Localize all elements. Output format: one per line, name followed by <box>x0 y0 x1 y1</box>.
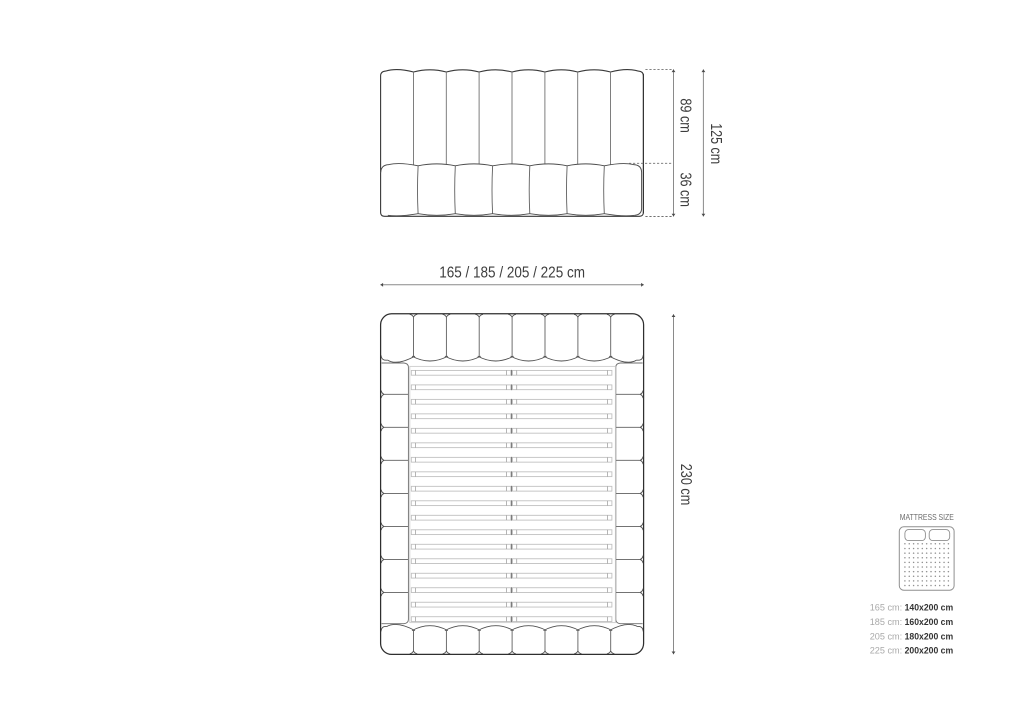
svg-text:230 cm: 230 cm <box>677 464 694 506</box>
svg-text:89 cm: 89 cm <box>677 98 694 133</box>
svg-text:160x200 cm: 160x200 cm <box>905 617 954 628</box>
svg-text:180x200 cm: 180x200 cm <box>905 631 954 642</box>
svg-text:205 cm:: 205 cm: <box>870 631 903 642</box>
svg-text:125 cm: 125 cm <box>707 123 724 164</box>
svg-text:185 cm:: 185 cm: <box>870 617 903 628</box>
svg-text:165 / 185 / 205 / 225 cm: 165 / 185 / 205 / 225 cm <box>439 265 585 282</box>
svg-text:140x200 cm: 140x200 cm <box>905 603 954 614</box>
svg-text:200x200 cm: 200x200 cm <box>905 646 954 657</box>
svg-text:165 cm:: 165 cm: <box>870 603 903 614</box>
svg-text:36 cm: 36 cm <box>677 172 694 207</box>
svg-text:MATTRESS SIZE: MATTRESS SIZE <box>900 512 954 522</box>
svg-text:225 cm:: 225 cm: <box>870 646 903 657</box>
